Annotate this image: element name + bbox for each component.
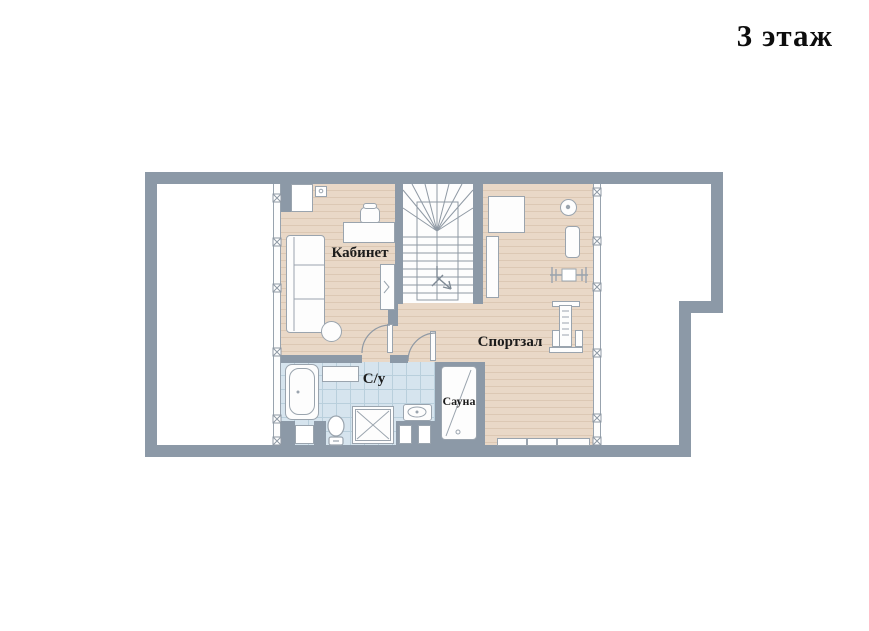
machine-base <box>549 347 583 353</box>
floor-plan-page: 3 этаж <box>0 0 869 631</box>
machine-arm-left <box>552 330 560 347</box>
gym-ball-icon <box>560 199 577 216</box>
outer-wall-right-lower <box>679 301 691 457</box>
bath-bottom-stub-2 <box>314 421 326 445</box>
sauna-label: Сауна <box>437 395 481 408</box>
gym-bench-icon <box>565 226 580 258</box>
stair-wall-right <box>473 184 483 304</box>
machine-arm-right <box>575 330 583 347</box>
office-corner-wall <box>281 184 291 212</box>
office-label: Кабинет <box>325 246 395 262</box>
bathtub-inner <box>289 368 315 415</box>
sofa-icon <box>286 235 325 333</box>
gym-window-strip-2 <box>527 438 557 446</box>
outer-wall-left <box>145 172 157 457</box>
page-title: 3 этаж <box>737 18 833 54</box>
window-wall-right <box>593 184 601 445</box>
outer-wall-right-upper <box>711 172 723 313</box>
gym-window-strip-3 <box>557 438 590 446</box>
bathroom-label: С/у <box>352 372 396 388</box>
office-door-leaf <box>387 324 393 353</box>
office-chair-back <box>363 203 377 209</box>
vent-shaft <box>315 186 327 197</box>
weight-machine-icon <box>559 305 572 347</box>
desk-icon <box>343 222 395 243</box>
bath-bottom-window-2 <box>399 425 412 444</box>
stair-wall-left <box>395 184 403 304</box>
bath-bottom-window-1 <box>295 425 314 444</box>
office-chair-icon <box>360 207 380 223</box>
bath-bottom-window-3 <box>418 425 431 444</box>
gym-shelf <box>486 236 499 298</box>
bathroom-top-wall-mid <box>390 355 408 363</box>
office-top-window <box>291 184 313 212</box>
exercise-mat-icon <box>488 196 525 233</box>
gym-label: Спортзал <box>475 335 545 351</box>
shower-inner <box>355 409 391 441</box>
round-table-icon <box>321 321 342 342</box>
outer-wall-top <box>145 172 723 184</box>
hall-door-leaf <box>430 331 436 361</box>
sink-icon <box>403 404 432 421</box>
outer-wall-bottom <box>145 445 691 457</box>
staircase-area <box>403 184 473 303</box>
bookshelf-icon <box>380 264 395 310</box>
bathroom-top-wall-left <box>281 355 362 363</box>
gym-window-strip-1 <box>497 438 527 446</box>
window-wall-left <box>273 184 281 445</box>
bath-bottom-stub-1 <box>281 421 295 445</box>
